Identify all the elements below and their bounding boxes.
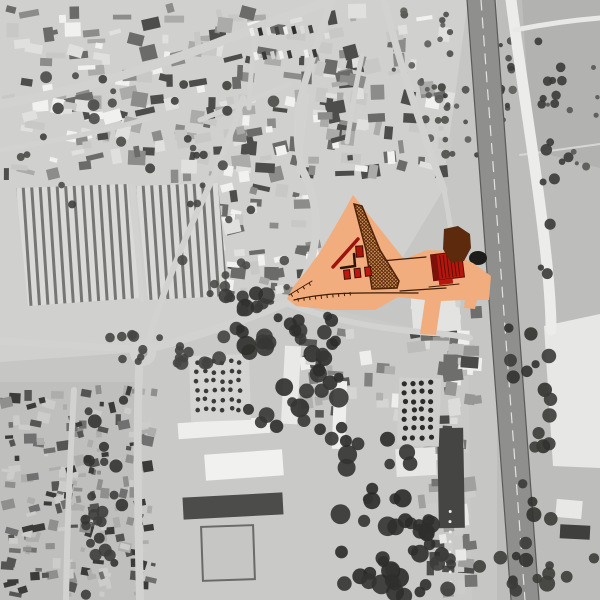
rowhouse-band-west (6, 184, 150, 306)
walled-compound (201, 525, 255, 581)
red-kiosk-3 (365, 267, 372, 277)
farm-structure-2 (560, 524, 591, 540)
road-south (138, 353, 140, 600)
school-slab-2 (204, 449, 284, 480)
farm-structure-1 (555, 499, 582, 519)
satellite-map-view (0, 0, 600, 600)
red-kiosk-1 (344, 270, 351, 280)
long-dark-building (437, 428, 465, 528)
red-kiosk-2 (354, 268, 361, 278)
red-box-at-tower (356, 246, 364, 257)
aerial-photo-canvas (0, 0, 600, 600)
